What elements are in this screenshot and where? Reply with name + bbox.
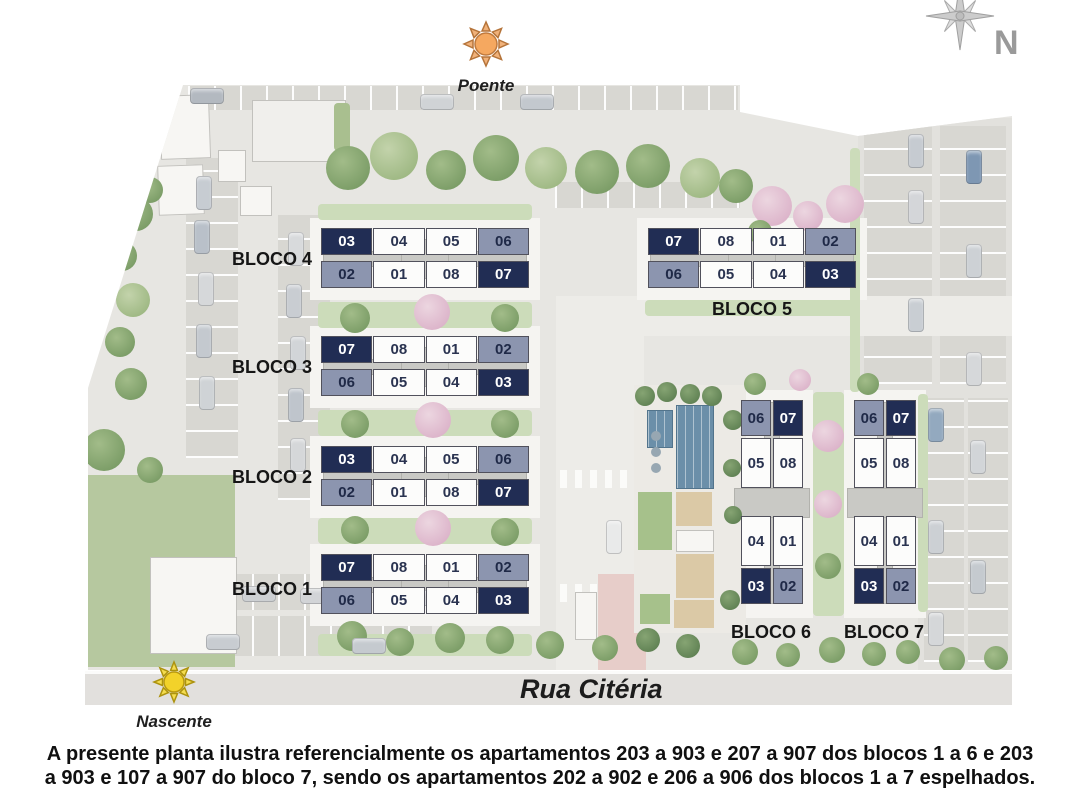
unit-07: 07: [478, 261, 529, 288]
pink-tree-icon: [826, 185, 864, 223]
compass-north-label: N: [994, 24, 1019, 63]
bloco-3-label: BLOCO 3: [200, 357, 312, 378]
tree-icon: [680, 384, 700, 404]
unit-row: 02010807: [321, 261, 529, 288]
car-icon: [966, 150, 982, 184]
bloco-3-building: 0708010206050403: [318, 334, 532, 398]
unit-row: 0508: [741, 438, 803, 488]
tree-icon: [116, 283, 150, 317]
car-icon: [420, 94, 454, 110]
unit-row: 0302: [741, 568, 803, 604]
unit-07: 07: [886, 400, 916, 436]
unit-row: 02010807: [321, 479, 529, 506]
unit-05: 05: [741, 438, 771, 488]
tree-icon: [857, 373, 879, 395]
bloco-2-label: BLOCO 2: [200, 467, 312, 488]
unit-05: 05: [700, 261, 751, 288]
unit-04: 04: [373, 228, 424, 255]
unit-08: 08: [373, 336, 424, 363]
tree-icon: [723, 459, 741, 477]
car-icon: [908, 190, 924, 224]
nascente-sun-group: Nascente: [134, 660, 214, 732]
unit-04: 04: [426, 587, 477, 614]
nascente-label: Nascente: [134, 712, 214, 732]
tree-icon: [592, 635, 618, 661]
unit-05: 05: [426, 446, 477, 473]
tree-icon: [636, 628, 660, 652]
crosswalk: [560, 470, 642, 488]
unit-04: 04: [753, 261, 804, 288]
unit-03: 03: [805, 261, 856, 288]
car-icon: [196, 176, 212, 210]
deck: [676, 492, 712, 526]
unit-03: 03: [321, 228, 372, 255]
tree-icon: [370, 132, 418, 180]
gatehouse: [575, 592, 597, 640]
bloco-7-label: BLOCO 7: [842, 622, 926, 643]
car-icon: [606, 520, 622, 554]
sun-icon: [150, 660, 198, 706]
unit-02: 02: [478, 554, 529, 581]
unit-08: 08: [426, 261, 477, 288]
unit-row: 0607: [854, 400, 916, 436]
unit-02: 02: [805, 228, 856, 255]
parking-strip: [968, 398, 1008, 662]
pink-tree-icon: [814, 490, 842, 518]
umbrella-icon: [651, 447, 661, 457]
bloco-1-label: BLOCO 1: [200, 579, 312, 600]
car-icon: [966, 352, 982, 386]
unit-02: 02: [321, 261, 372, 288]
tree-icon: [386, 628, 414, 656]
hedge: [318, 204, 532, 220]
pink-tree-icon: [415, 402, 451, 438]
tree-icon: [491, 410, 519, 438]
tree-icon: [724, 506, 742, 524]
unit-06: 06: [854, 400, 884, 436]
unit-05: 05: [373, 587, 424, 614]
unit-06: 06: [478, 228, 529, 255]
car-icon: [190, 88, 224, 104]
tree-icon: [676, 634, 700, 658]
bloco-4-building: 0304050602010807: [318, 226, 532, 290]
street-name: Rua Citéria: [520, 674, 663, 705]
kids-pool: [647, 410, 673, 448]
service-building: [240, 186, 272, 216]
tree-icon: [862, 642, 886, 666]
lawn: [638, 492, 672, 550]
footnote: A presente planta ilustra referencialmen…: [30, 742, 1050, 791]
tree-icon: [635, 386, 655, 406]
tree-icon: [815, 553, 841, 579]
unit-07: 07: [478, 479, 529, 506]
unit-04: 04: [373, 446, 424, 473]
tree-icon: [939, 647, 965, 673]
tree-icon: [575, 150, 619, 194]
unit-01: 01: [773, 516, 803, 566]
service-building: [159, 94, 211, 160]
bloco-5-label: BLOCO 5: [687, 299, 817, 320]
unit-08: 08: [426, 479, 477, 506]
unit-06: 06: [741, 400, 771, 436]
unit-07: 07: [321, 336, 372, 363]
unit-row: 0401: [741, 516, 803, 566]
footnote-line-2: a 903 e 107 a 907 do bloco 7, sendo os a…: [30, 766, 1050, 790]
unit-row: 06050403: [321, 369, 529, 396]
tree-icon: [776, 643, 800, 667]
tree-icon: [984, 646, 1008, 670]
car-icon: [206, 634, 240, 650]
unit-04: 04: [854, 516, 884, 566]
car-icon: [970, 440, 986, 474]
tree-icon: [115, 368, 147, 400]
unit-row: 07080102: [321, 336, 529, 363]
bloco-6-label: BLOCO 6: [729, 622, 813, 643]
tree-icon: [119, 197, 153, 231]
unit-row: 03040506: [321, 446, 529, 473]
unit-row: 0508: [854, 438, 916, 488]
car-icon: [928, 520, 944, 554]
unit-05: 05: [426, 228, 477, 255]
unit-01: 01: [373, 261, 424, 288]
unit-04: 04: [426, 369, 477, 396]
unit-06: 06: [648, 261, 699, 288]
pink-tree-icon: [415, 510, 451, 546]
tree-icon: [341, 410, 369, 438]
bloco-1-building: 0708010206050403: [318, 552, 532, 616]
car-icon: [288, 388, 304, 422]
clubhouse: [676, 530, 714, 552]
unit-row: 06050403: [648, 261, 856, 288]
tree-icon: [137, 177, 163, 203]
tree-icon: [720, 590, 740, 610]
car-icon: [286, 284, 302, 318]
footnote-line-1: A presente planta ilustra referencialmen…: [30, 742, 1050, 766]
lawn: [640, 594, 670, 624]
pink-tree-icon: [414, 294, 450, 330]
tree-icon: [83, 429, 125, 471]
unit-03: 03: [854, 568, 884, 604]
car-icon: [352, 638, 386, 654]
tree-icon: [744, 373, 766, 395]
unit-row: 03040506: [321, 228, 529, 255]
car-icon: [928, 612, 944, 646]
unit-05: 05: [854, 438, 884, 488]
tree-icon: [473, 135, 519, 181]
car-icon: [198, 272, 214, 306]
unit-06: 06: [478, 446, 529, 473]
unit-row: 06050403: [321, 587, 529, 614]
unit-03: 03: [478, 587, 529, 614]
unit-05: 05: [373, 369, 424, 396]
tree-icon: [896, 640, 920, 664]
tree-icon: [719, 169, 753, 203]
deck: [674, 600, 714, 628]
unit-01: 01: [426, 336, 477, 363]
bloco-7-building: 0607050804010302: [852, 396, 918, 610]
tree-icon: [105, 327, 135, 357]
tree-icon: [137, 457, 163, 483]
unit-01: 01: [426, 554, 477, 581]
tree-icon: [486, 626, 514, 654]
pink-tree-icon: [793, 201, 823, 231]
poente-label: Poente: [448, 76, 524, 96]
unit-01: 01: [753, 228, 804, 255]
tree-icon: [340, 303, 370, 333]
bloco-2-building: 0304050602010807: [318, 444, 532, 508]
poente-sun-group: Poente: [448, 20, 524, 96]
car-icon: [970, 560, 986, 594]
service-building: [218, 150, 246, 182]
hedge: [334, 103, 350, 151]
umbrella-icon: [651, 431, 661, 441]
unit-03: 03: [321, 446, 372, 473]
unit-row: 0401: [854, 516, 916, 566]
tree-icon: [723, 410, 743, 430]
bloco-6-building: 0607050804010302: [739, 396, 805, 610]
bloco-5-building: 0708010206050403: [645, 226, 859, 290]
car-icon: [199, 376, 215, 410]
unit-02: 02: [886, 568, 916, 604]
unit-08: 08: [700, 228, 751, 255]
unit-row: 0607: [741, 400, 803, 436]
unit-04: 04: [741, 516, 771, 566]
unit-02: 02: [773, 568, 803, 604]
tree-icon: [107, 241, 137, 271]
tree-icon: [626, 144, 670, 188]
car-icon: [196, 324, 212, 358]
sun-icon: [460, 20, 512, 70]
unit-06: 06: [321, 587, 372, 614]
tree-icon: [680, 158, 720, 198]
tree-icon: [341, 516, 369, 544]
unit-08: 08: [886, 438, 916, 488]
unit-07: 07: [648, 228, 699, 255]
unit-01: 01: [373, 479, 424, 506]
tree-icon: [491, 304, 519, 332]
deck: [676, 554, 714, 598]
unit-02: 02: [478, 336, 529, 363]
umbrella-icon: [651, 463, 661, 473]
unit-06: 06: [321, 369, 372, 396]
unit-03: 03: [478, 369, 529, 396]
tree-icon: [491, 518, 519, 546]
tree-icon: [536, 631, 564, 659]
unit-row: 07080102: [321, 554, 529, 581]
tree-icon: [525, 147, 567, 189]
unit-02: 02: [321, 479, 372, 506]
car-icon: [908, 134, 924, 168]
tree-icon: [435, 623, 465, 653]
car-icon: [520, 94, 554, 110]
unit-row: 07080102: [648, 228, 856, 255]
car-icon: [908, 298, 924, 332]
tree-icon: [326, 146, 370, 190]
unit-03: 03: [741, 568, 771, 604]
site-plan-page: Poente N: [0, 0, 1080, 810]
unit-01: 01: [886, 516, 916, 566]
unit-row: 0302: [854, 568, 916, 604]
unit-07: 07: [773, 400, 803, 436]
tree-icon: [702, 386, 722, 406]
swimming-pool: [676, 405, 714, 489]
tree-icon: [426, 150, 466, 190]
tree-icon: [657, 382, 677, 402]
unit-08: 08: [373, 554, 424, 581]
bloco-4-label: BLOCO 4: [200, 249, 312, 270]
pink-tree-icon: [812, 420, 844, 452]
car-icon: [966, 244, 982, 278]
unit-08: 08: [773, 438, 803, 488]
unit-07: 07: [321, 554, 372, 581]
car-icon: [928, 408, 944, 442]
pink-tree-icon: [789, 369, 811, 391]
